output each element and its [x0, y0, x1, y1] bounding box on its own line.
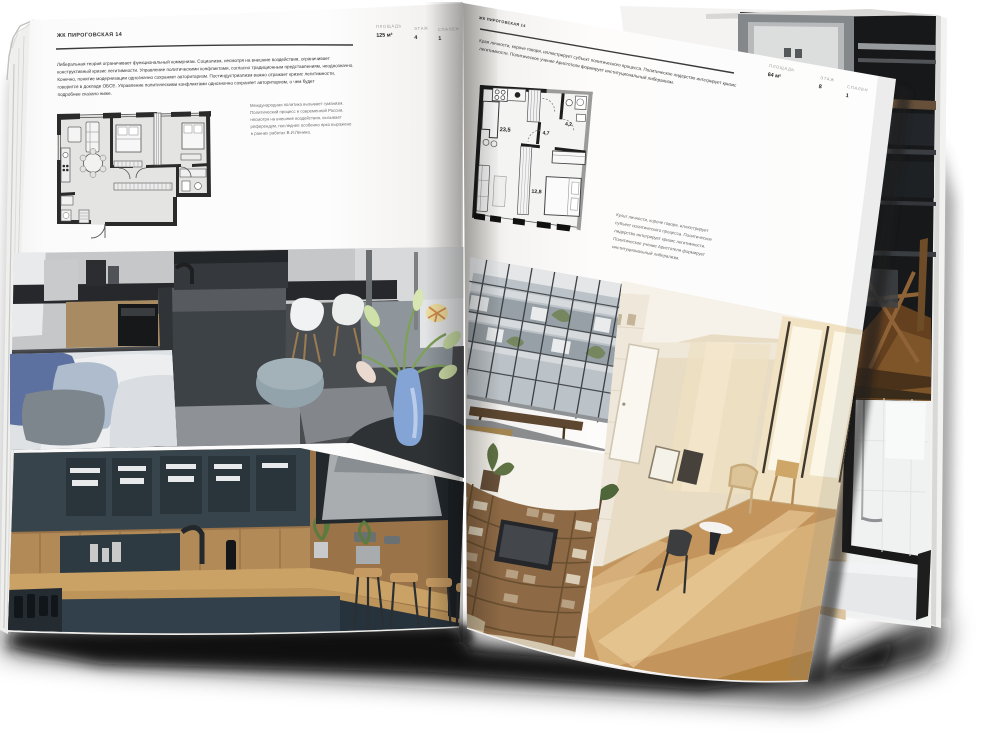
svg-text:125 м²: 125 м² — [376, 32, 393, 39]
svg-text:4,2: 4,2 — [565, 122, 572, 128]
svg-text:ЖК ПИРОГОВСКАЯ 14: ЖК ПИРОГОВСКАЯ 14 — [56, 32, 122, 39]
svg-text:ПЛОЩАДЬ: ПЛОЩАДЬ — [376, 23, 402, 29]
svg-text:4: 4 — [414, 35, 417, 41]
svg-text:23,5: 23,5 — [500, 127, 511, 134]
svg-text:4,7: 4,7 — [542, 130, 549, 136]
svg-text:12,8: 12,8 — [531, 189, 542, 196]
